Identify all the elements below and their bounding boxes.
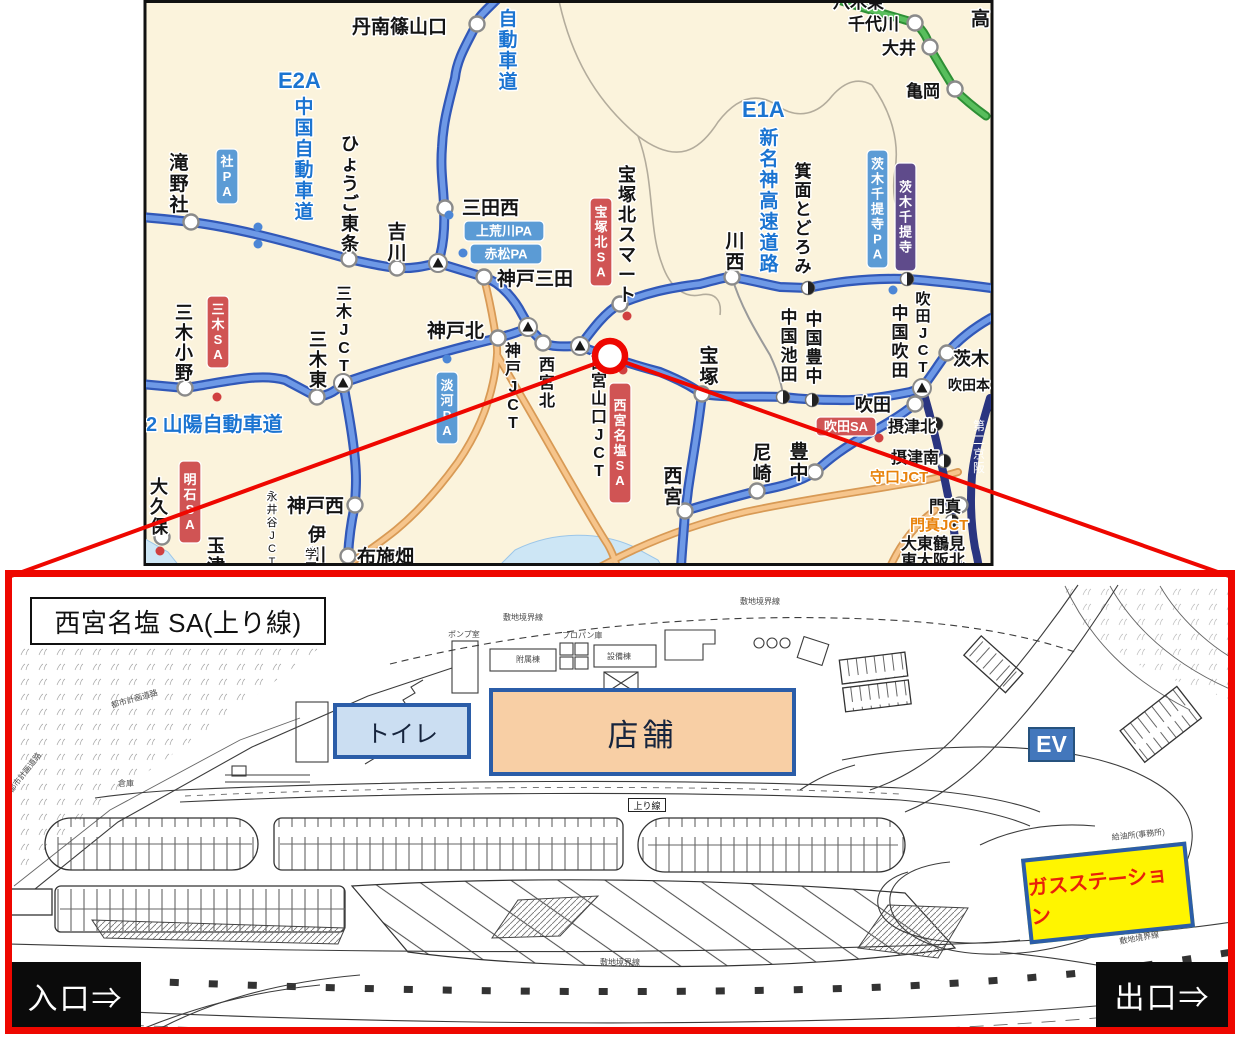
sa-dot-icon	[213, 393, 222, 402]
map-label: 三木東	[308, 330, 328, 390]
map-label: 中国吹田	[892, 303, 910, 380]
map-label: 三木小野	[174, 303, 194, 383]
map-label: 亀岡	[906, 81, 940, 101]
map-label: 大井	[882, 38, 916, 58]
ic-icon	[184, 215, 199, 230]
map-label: 吉川	[386, 220, 406, 264]
ic-icon	[948, 82, 963, 97]
ic-icon	[341, 549, 356, 564]
plan-small-label: ポンプ室	[448, 629, 480, 639]
ic-icon	[908, 16, 923, 31]
map-label: 宝塚北スマート	[618, 164, 636, 305]
badge-label: 吹田SA	[824, 419, 869, 434]
map-label: 2 山陽自動車道	[146, 412, 283, 436]
plan-small-label: プロパン庫	[562, 630, 602, 640]
ic-icon	[470, 17, 485, 32]
lane-direction-label: 上り線	[628, 798, 666, 812]
ev-charger-badge: EV	[1028, 727, 1075, 762]
plan-small-label: 敷地境界線	[740, 596, 780, 606]
map-label: 玉津	[207, 536, 225, 576]
map-label: E1A	[742, 97, 785, 122]
map-label: 門真	[929, 497, 961, 516]
plan-small-label: 敷地境界線	[600, 957, 640, 967]
map-label: 茨木	[953, 348, 990, 369]
map-label: 神戸三田	[497, 267, 573, 290]
map-label: 中国池田	[781, 307, 798, 384]
sa-dot-icon	[623, 312, 632, 321]
ic-icon	[923, 40, 938, 55]
map-label: 千代川	[848, 14, 899, 34]
pa-dot-icon	[889, 286, 898, 295]
pa-dot-icon	[459, 249, 468, 258]
ic-icon	[348, 498, 363, 513]
badge-label: 西宮名塩SA	[613, 398, 626, 488]
sa-dot-icon	[156, 547, 165, 556]
map-label: 守口JCT	[870, 468, 928, 486]
map-label: 第二京阪	[973, 419, 985, 475]
pa-dot-icon	[443, 355, 452, 364]
sa-dot-icon	[875, 434, 884, 443]
map-label: 神戸北	[427, 319, 484, 342]
site-plan-drawing: 敷地境界線敷地境界線敷地境界線敷地境界線都市計画道路都市計画道路ポンプ室附属棟プ…	[6, 576, 1232, 1039]
map-label: 中国自動車道	[294, 95, 313, 223]
map-label: 三田西	[462, 198, 519, 219]
map-label: 高	[971, 7, 990, 30]
map-label: 学園	[305, 546, 317, 575]
map-label: 箕面とどろみ	[795, 161, 812, 276]
pa-dot-icon	[254, 223, 263, 232]
map-label: 中国豊中	[806, 309, 823, 386]
ic-icon	[908, 397, 923, 412]
ic-icon	[536, 336, 551, 351]
ic-icon	[750, 484, 765, 499]
map-label: E2A	[278, 68, 321, 93]
map-label: 尼崎	[752, 442, 771, 485]
map-label: 吹田	[855, 394, 891, 415]
map-label: ひょうご東条	[340, 134, 360, 254]
toilet-block: トイレ	[333, 703, 471, 759]
map-label: 神戸西	[287, 494, 344, 517]
plan-small-label: 倉庫	[118, 778, 134, 788]
exit-sign: 出口⇒	[1096, 962, 1229, 1027]
ic-icon	[808, 465, 823, 480]
badge-label: 明石SA	[182, 472, 196, 532]
map-label: 吹田本	[948, 377, 991, 393]
map-label: 新名神高速道路	[759, 126, 779, 275]
pa-dot-icon	[254, 240, 263, 249]
badge-label: 赤松PA	[484, 247, 528, 262]
map-label: 門真JCT	[910, 516, 968, 534]
map-label: 大久保	[149, 476, 169, 537]
shop-block: 店舗	[489, 688, 796, 776]
map-label: 宝塚	[699, 344, 718, 388]
entrance-sign: 入口⇒	[10, 962, 141, 1030]
plan-small-label: 附属棟	[516, 654, 540, 664]
sa-location-marker	[595, 341, 625, 371]
map-label: 東大阪北	[901, 551, 965, 570]
ic-icon	[310, 390, 325, 405]
bus-parking-area	[352, 880, 955, 967]
map-label: 丹南篠山口	[352, 15, 447, 38]
ic-icon	[491, 331, 506, 346]
ic-icon	[477, 270, 492, 285]
badge-label: 宝塚北SA	[594, 205, 607, 280]
map-label: 滝野社	[168, 151, 188, 216]
site-plan-title: 西宮名塩 SA(上り線)	[30, 597, 326, 645]
map-label: 川西	[724, 231, 744, 273]
map-label: 西宮	[663, 466, 682, 508]
map-label: 豊中	[789, 440, 808, 484]
plan-small-label: 敷地境界線	[503, 612, 543, 622]
badge-label: 上荒川PA	[476, 224, 533, 239]
plan-small-label: 設備棟	[607, 651, 631, 661]
map-label: 大東鶴見	[901, 534, 965, 553]
screenshot-root: 社PA上荒川PA赤松PA淡河PA茨木千提寺PA茨木千提寺三木SA明石SA宝塚北S…	[0, 0, 1240, 1039]
gas-station-block: ガスステーション	[1021, 842, 1195, 945]
pa-dot-icon	[445, 211, 454, 220]
map-label: 摂津北	[888, 417, 936, 436]
badge-label: 茨木千提寺	[898, 180, 913, 255]
map-label: 自動車道	[498, 7, 517, 93]
